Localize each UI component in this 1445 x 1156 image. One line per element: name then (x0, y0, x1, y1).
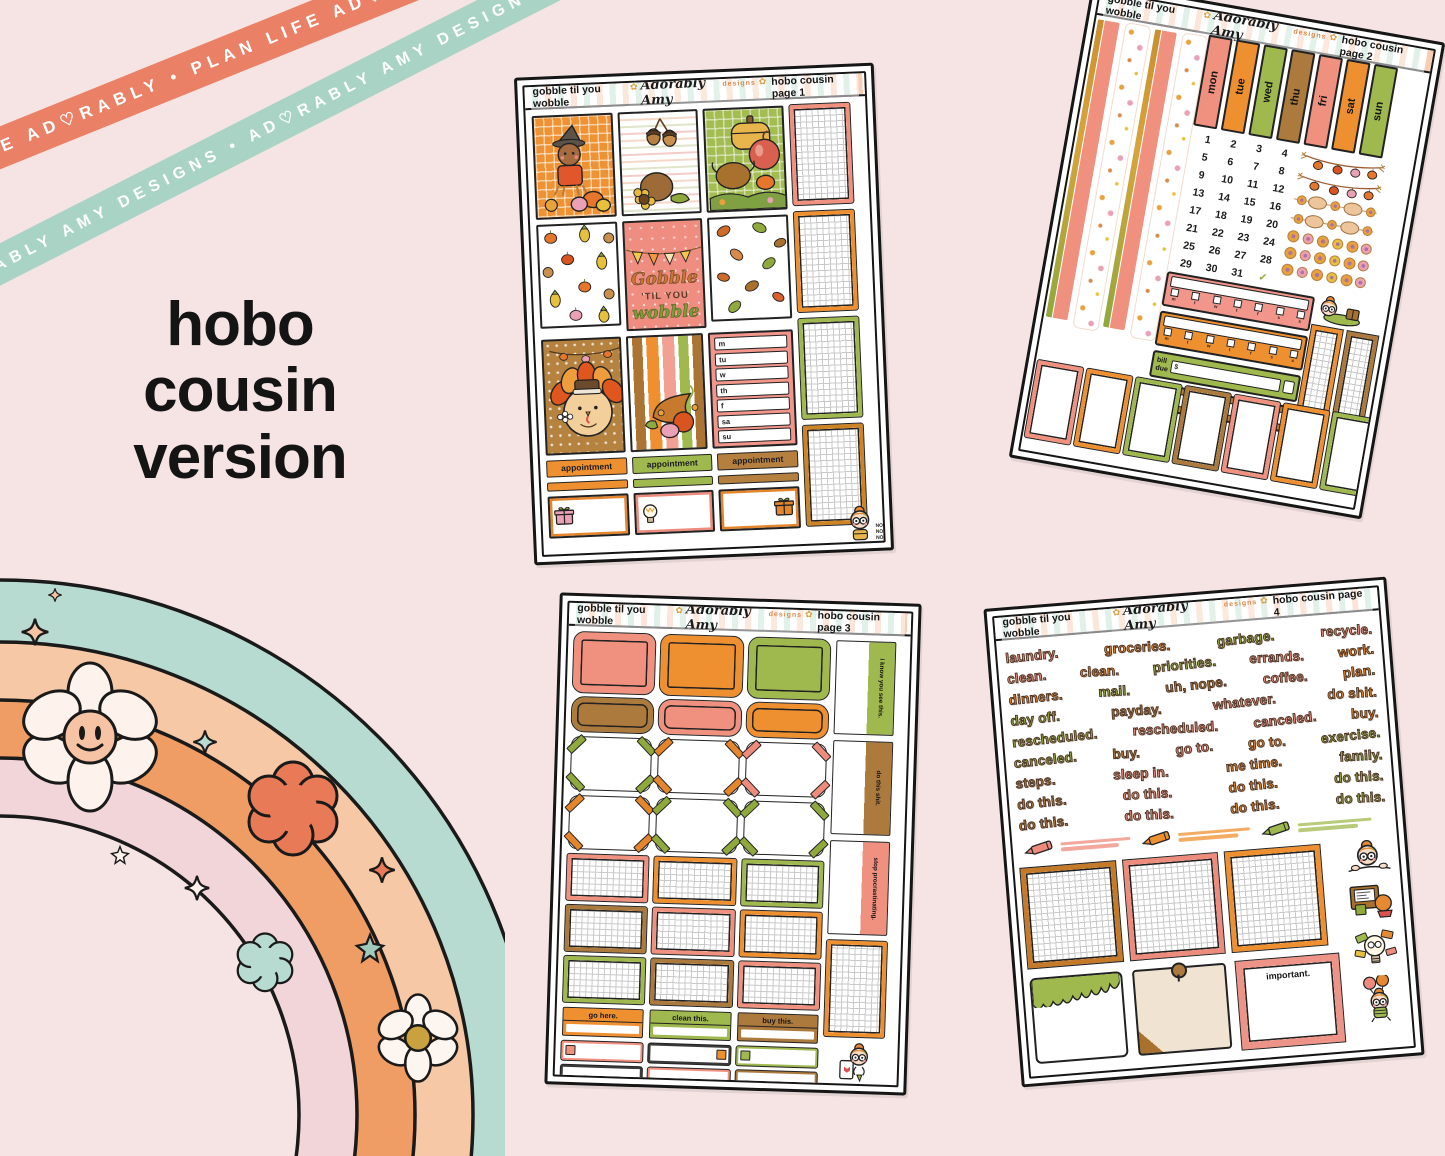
list-item: 15 (1236, 194, 1264, 210)
rainbow-decoration (0, 555, 505, 1156)
flower-icon: ✿ (1260, 595, 1268, 607)
important-label: important. (1266, 968, 1311, 981)
list-item (747, 637, 830, 700)
list-item: 10 (1213, 172, 1241, 188)
list-item (789, 103, 853, 205)
list-item: buy this. (736, 1012, 818, 1044)
note-stickers: important. (1029, 954, 1345, 1067)
list-item: 22 (1204, 225, 1232, 241)
gift-icon (774, 497, 795, 518)
money-bulb-icon (1351, 926, 1400, 970)
list-item: plan. (1342, 662, 1376, 680)
leaf-pattern (709, 216, 792, 319)
list-item: appointment (632, 454, 713, 474)
list-item: rescheduled. (1132, 719, 1218, 739)
sidebar-grid-boxes (789, 103, 867, 538)
list-item (566, 854, 649, 903)
list-item (655, 798, 738, 855)
list-item: i know you see this. (834, 640, 897, 736)
movie-sign-icon (1348, 880, 1397, 922)
list-item: 27 (1226, 247, 1254, 263)
page-title: hobo cousin version (55, 292, 425, 491)
list-item (565, 905, 648, 954)
marker-icon (1022, 837, 1058, 859)
list-item: 17 (1181, 203, 1209, 219)
list-item: do this. (1336, 789, 1386, 807)
list-item (647, 1067, 730, 1087)
list-item: 6 (1216, 154, 1244, 170)
cornucopia-sticker (626, 333, 708, 452)
list-item (1221, 395, 1280, 480)
list-item: 24 (1255, 234, 1283, 250)
list-item (746, 702, 828, 739)
list-item (1271, 403, 1330, 488)
title-line-2: cousin (55, 358, 425, 424)
turkey-icon (543, 338, 626, 453)
list-item (573, 632, 656, 695)
list-item: 30 (1198, 260, 1226, 276)
flower-icon: ✿ (1203, 9, 1212, 21)
pumpkin-pattern-sticker (536, 222, 621, 329)
list-item (568, 795, 651, 852)
cornucopia-icon (628, 335, 707, 450)
list-item (798, 317, 862, 419)
girl-reading-icon (1315, 294, 1367, 330)
pushpin-icon (1170, 962, 1187, 979)
garland-stickers (1278, 148, 1391, 292)
list-row (568, 795, 826, 857)
word-sticker-rows: laundry.groceries.garbage.recycle.clean.… (1002, 617, 1388, 835)
turkey-sticker (541, 336, 626, 455)
checkbox-strip-row (561, 1041, 817, 1068)
list-item: garbage. (1216, 628, 1275, 649)
list-item: th (716, 381, 789, 397)
list-item (1123, 853, 1225, 960)
list-item: family. (1339, 747, 1383, 764)
flower-icon: ✿ (675, 605, 683, 616)
acorn-sunflower-icon (619, 111, 702, 214)
girl-balloons-icon (1355, 974, 1405, 1024)
list-item: 20 (1258, 216, 1286, 232)
list-item: steps. (1015, 772, 1057, 791)
gift-icon (554, 507, 575, 528)
list-item: do this. (1124, 806, 1174, 824)
list-item: sleep in. (1112, 764, 1169, 782)
list-item (571, 697, 653, 734)
scarecrow-icon (534, 115, 617, 218)
list-item (570, 736, 653, 793)
dinner-sticker (703, 105, 788, 212)
list-item (563, 956, 646, 1005)
character-stickers-column (1339, 838, 1409, 1024)
list-item (547, 479, 628, 491)
list-item (744, 741, 827, 798)
list-item: groceries. (1104, 638, 1171, 657)
list-item: appointment (546, 457, 627, 477)
list-item: 8 (1268, 163, 1296, 179)
acorn-sticker (617, 109, 702, 216)
list-item: 12 (1265, 181, 1293, 197)
list-item: buy. (1351, 705, 1379, 721)
pinned-note-sticker (1132, 963, 1232, 1056)
list-item (739, 910, 822, 959)
title-line-1: hobo (55, 292, 425, 358)
list-item: clean. (1006, 668, 1047, 687)
list-item: stop procrastinating. (827, 840, 890, 936)
list-item: 25 (1175, 238, 1203, 254)
full-box-row (573, 632, 831, 700)
list-item (738, 961, 821, 1010)
list-item: dinners. (1008, 687, 1063, 708)
list-item (734, 1070, 817, 1087)
list-item: recycle. (1320, 622, 1373, 640)
list-item: 14 (1210, 190, 1238, 206)
list-item: do this. (1230, 796, 1281, 816)
list-item (560, 1065, 643, 1088)
scarecrow-sticker (532, 113, 617, 220)
list-row (565, 905, 822, 959)
list-item: go to. (1174, 739, 1213, 758)
flower-icon: ✿ (759, 76, 767, 87)
teal-flower-icon (238, 933, 293, 991)
list-item: m (714, 335, 787, 351)
list-item: canceled. (1013, 749, 1078, 771)
sticker-sheet-page-3: gobble til you wobble ✿ Adorably Amy des… (544, 592, 921, 1095)
list-item (633, 476, 714, 488)
list-item: 28 (1252, 252, 1280, 268)
sticker-sheet-page-2: gobble til you wobble ✿ Adorably Amy des… (1009, 0, 1445, 519)
no-no-no-text: NONONO (875, 523, 883, 541)
list-item (660, 635, 743, 698)
lightbulb-icon (641, 503, 660, 524)
list-item: 7 (1242, 159, 1270, 175)
list-item: 1 (1194, 132, 1222, 148)
flower-icon: ✿ (805, 609, 813, 620)
list-item: su (718, 427, 791, 443)
list-item: w (715, 366, 788, 382)
list-item: 18 (1207, 207, 1235, 223)
list-row (566, 854, 823, 908)
list-item: mail. (1098, 683, 1131, 700)
list-item: 21 (1178, 220, 1206, 236)
list-item: work. (1337, 641, 1375, 660)
list-item (561, 1041, 643, 1063)
list-item: go here. (562, 1007, 644, 1039)
list-item (652, 908, 735, 957)
list-item (650, 959, 733, 1008)
list-item: do this. (1018, 813, 1069, 833)
list-item: 16 (1261, 199, 1289, 215)
list-item (659, 700, 741, 737)
sticker-sheet-page-4: gobble til you wobble ✿ Adorably Amy des… (983, 577, 1424, 1088)
drip-icon (1031, 971, 1121, 1008)
pumpkin-corn-pattern (538, 224, 621, 327)
list-item: clean. (1079, 663, 1119, 680)
list-item: 13 (1185, 185, 1213, 201)
marker-icon (1139, 828, 1175, 850)
feast-icon (705, 107, 788, 210)
leaf-pattern-sticker (707, 214, 792, 321)
list-item (718, 472, 799, 484)
drip-note-sticker (1029, 971, 1129, 1064)
list-item: f (717, 396, 790, 412)
grid-frame-stickers (1020, 845, 1327, 969)
list-item: day off. (1010, 709, 1061, 729)
list-item (742, 800, 825, 857)
character-reading-girl (1315, 294, 1367, 330)
list-item: 31 (1223, 265, 1251, 281)
list-item (1074, 369, 1133, 454)
list-item: 2 (1220, 136, 1248, 152)
half-box-row (571, 697, 828, 739)
list-item: do shit. (1327, 684, 1377, 702)
list-item: priorities. (1152, 654, 1217, 676)
list-item (1123, 377, 1182, 462)
gift-label-sticker-2 (719, 486, 801, 531)
weekday-list-sticker: mtuwthfsasu (708, 329, 798, 448)
list-item (736, 1046, 818, 1068)
list-item: tu (715, 350, 788, 366)
list-item (1025, 360, 1084, 445)
list-item: errands. (1249, 648, 1305, 666)
list-item: do this. (1334, 768, 1384, 786)
list-item: 29 (1172, 256, 1200, 272)
title-line-3: version (55, 425, 425, 491)
flower-icon: ✿ (630, 81, 638, 92)
side-grid-box (824, 940, 887, 1038)
product-image: PLAN LIFE AD♡RABLY • PLAN LIFE AD♡RABLY … (0, 0, 1445, 1156)
list-item: clean this. (649, 1009, 731, 1041)
sticker-sheet-page-1: gobble til you wobble ✿ Adorably Amy des… (514, 63, 894, 566)
flower-icon: ✿ (1329, 31, 1338, 43)
marker-icon (1259, 818, 1295, 840)
list-item (794, 210, 858, 312)
list-item: 9 (1188, 167, 1216, 183)
list-item: laundry. (1005, 645, 1059, 666)
mini-label-row (548, 486, 802, 539)
list-item: go to. (1248, 734, 1287, 751)
girl-doodle-icon (844, 505, 875, 542)
list-item: 23 (1230, 229, 1258, 245)
coral-flower-icon (249, 762, 337, 855)
list-item: 11 (1239, 176, 1267, 192)
page-number-label: hobo cousin page 1 (769, 72, 859, 100)
list-item: do this. (1123, 785, 1173, 803)
important-frame-sticker: important. (1235, 954, 1345, 1050)
flower-icon: ✿ (1112, 607, 1120, 619)
vertical-label-stickers: i know you see this.do this shit.stop pr… (827, 640, 896, 936)
list-item: sa (717, 412, 790, 428)
page-number-label: hobo cousin page 3 (815, 609, 905, 636)
list-item: coffee. (1262, 669, 1308, 686)
list-item (1020, 861, 1122, 968)
list-item: 3 (1245, 141, 1273, 157)
list-item: 5 (1191, 150, 1219, 166)
list-item (1320, 412, 1379, 497)
list-item: do this. (1016, 792, 1067, 812)
quote-line-3: wobble (632, 303, 700, 323)
list-item: whatever. (1213, 691, 1278, 713)
quote-line-2: 'TIL YOU (641, 290, 689, 303)
list-row (563, 956, 820, 1010)
girl-with-cup-icon (836, 1042, 871, 1083)
list-item (741, 859, 824, 908)
list-item (657, 739, 740, 796)
header-sticker-row: go here.clean this.buy this. (562, 1007, 819, 1044)
list-item (1225, 845, 1327, 952)
kit-name: gobble til you wobble (530, 82, 627, 110)
checkbox-box-row (560, 1065, 817, 1088)
list-item: uh, nope. (1165, 674, 1228, 695)
list-item: NO (876, 535, 884, 541)
list-item: 4 (1271, 145, 1299, 161)
quote-line-1: Gobble (631, 269, 699, 289)
character-no-girl: NONONO (844, 505, 884, 543)
quote-sticker: Gobble 'TIL YOU wobble (622, 218, 707, 331)
list-item (1172, 386, 1231, 471)
list-item (648, 1043, 730, 1065)
list-item: ✓ (1249, 269, 1277, 285)
list-item: 19 (1233, 212, 1261, 228)
list-item: canceled. (1252, 709, 1317, 731)
list-item: appointment (717, 450, 798, 470)
grid-box-rows (563, 854, 824, 1010)
tape-box-rows (568, 736, 827, 857)
list-item: do this. (1228, 775, 1279, 795)
girl-peeking-icon (1344, 838, 1393, 876)
list-item: do this shit. (830, 740, 893, 836)
list-item: buy. (1112, 745, 1140, 761)
list-row (570, 736, 828, 798)
list-item: me time. (1225, 754, 1283, 775)
list-item: 26 (1201, 243, 1229, 259)
list-item (653, 857, 736, 906)
list-item: payday. (1111, 702, 1162, 720)
list-item: exercise. (1320, 725, 1381, 746)
gift-label-sticker (548, 493, 630, 538)
idea-label-sticker (633, 490, 715, 535)
